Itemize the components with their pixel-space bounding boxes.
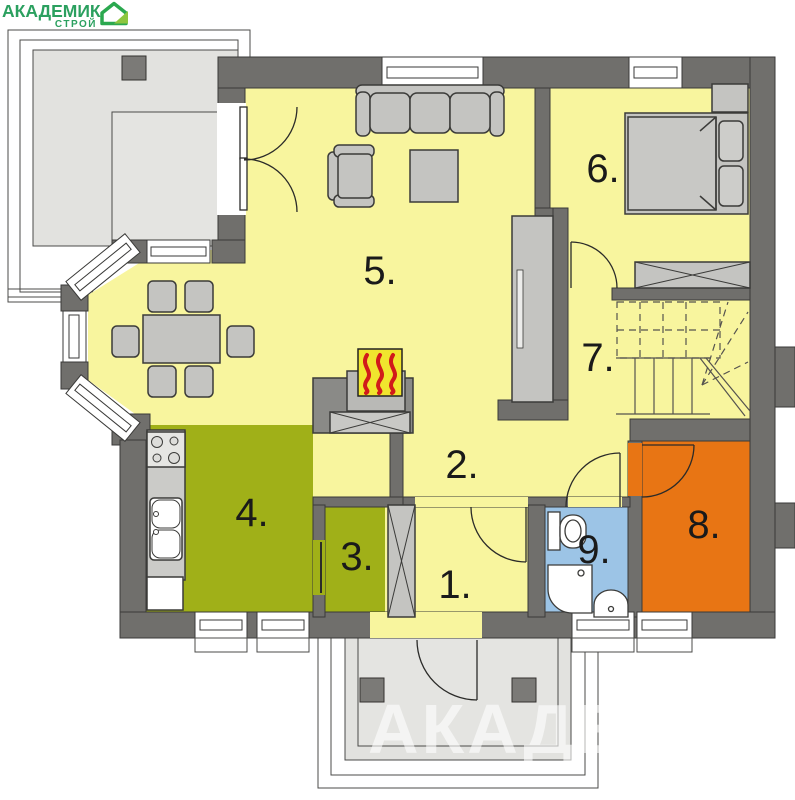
window-bedroom-top xyxy=(629,57,682,88)
logo-brand: АКАДЕМИК xyxy=(2,1,101,21)
chimney-block xyxy=(330,412,410,433)
dining-chair xyxy=(185,281,213,312)
house-icon xyxy=(102,4,128,24)
wardrobe-entry xyxy=(388,505,415,617)
coffee-table xyxy=(410,150,458,202)
room-label-8: 8. xyxy=(687,503,720,547)
logo-sub: СТРОЙ xyxy=(55,17,97,30)
shower xyxy=(548,565,592,613)
room-label-2: 2. xyxy=(445,443,478,487)
room-label-5: 5. xyxy=(363,249,396,293)
room-label-7: 7. xyxy=(581,336,614,380)
washbasin xyxy=(594,590,628,617)
wall-pilaster xyxy=(775,347,795,407)
wall-right xyxy=(750,57,775,632)
floor-plan: 1. 2. 3. 4. 5. 6. 7. 8. 9. АКАДЕМИК АКАД… xyxy=(0,0,795,800)
window-dining-top xyxy=(147,240,210,263)
fridge xyxy=(147,577,183,610)
room-label-1: 1. xyxy=(438,563,471,607)
logo: АКАДЕМИК СТРОЙ xyxy=(2,1,128,30)
room-label-3: 3. xyxy=(340,535,373,579)
dining-chair xyxy=(227,326,254,357)
tv-cabinet xyxy=(512,216,553,402)
pillow xyxy=(719,121,743,161)
window-room8 xyxy=(637,612,692,638)
floor-plan-page: 1. 2. 3. 4. 5. 6. 7. 8. 9. АКАДЕМИК АКАД… xyxy=(0,0,795,800)
watermark-text: АКАДЕМИК xyxy=(368,690,786,768)
wall-pilaster xyxy=(775,503,795,548)
room-label-4: 4. xyxy=(235,491,268,535)
dining-chair xyxy=(148,281,176,312)
sofa xyxy=(356,85,504,136)
armchair xyxy=(328,145,374,207)
room-label-6: 6. xyxy=(586,147,619,191)
dining-chair xyxy=(148,366,176,397)
dining-chair xyxy=(185,366,213,397)
window-kitchen-1 xyxy=(195,612,247,638)
pillow xyxy=(719,166,743,206)
nightstand xyxy=(712,84,748,112)
window-living-top xyxy=(382,57,483,88)
dining-chair xyxy=(112,326,139,357)
terrace-pillar xyxy=(122,56,146,80)
bed xyxy=(625,113,748,214)
kitchen-sink xyxy=(150,498,182,560)
wall-kitchen-left xyxy=(120,440,146,612)
window-bay-left xyxy=(63,311,86,362)
wardrobe-bedroom xyxy=(635,262,750,288)
window-kitchen-2 xyxy=(257,612,309,638)
room-label-9: 9. xyxy=(577,528,610,572)
wall-top xyxy=(218,57,775,88)
stove xyxy=(147,432,185,467)
dining-table xyxy=(143,315,220,363)
